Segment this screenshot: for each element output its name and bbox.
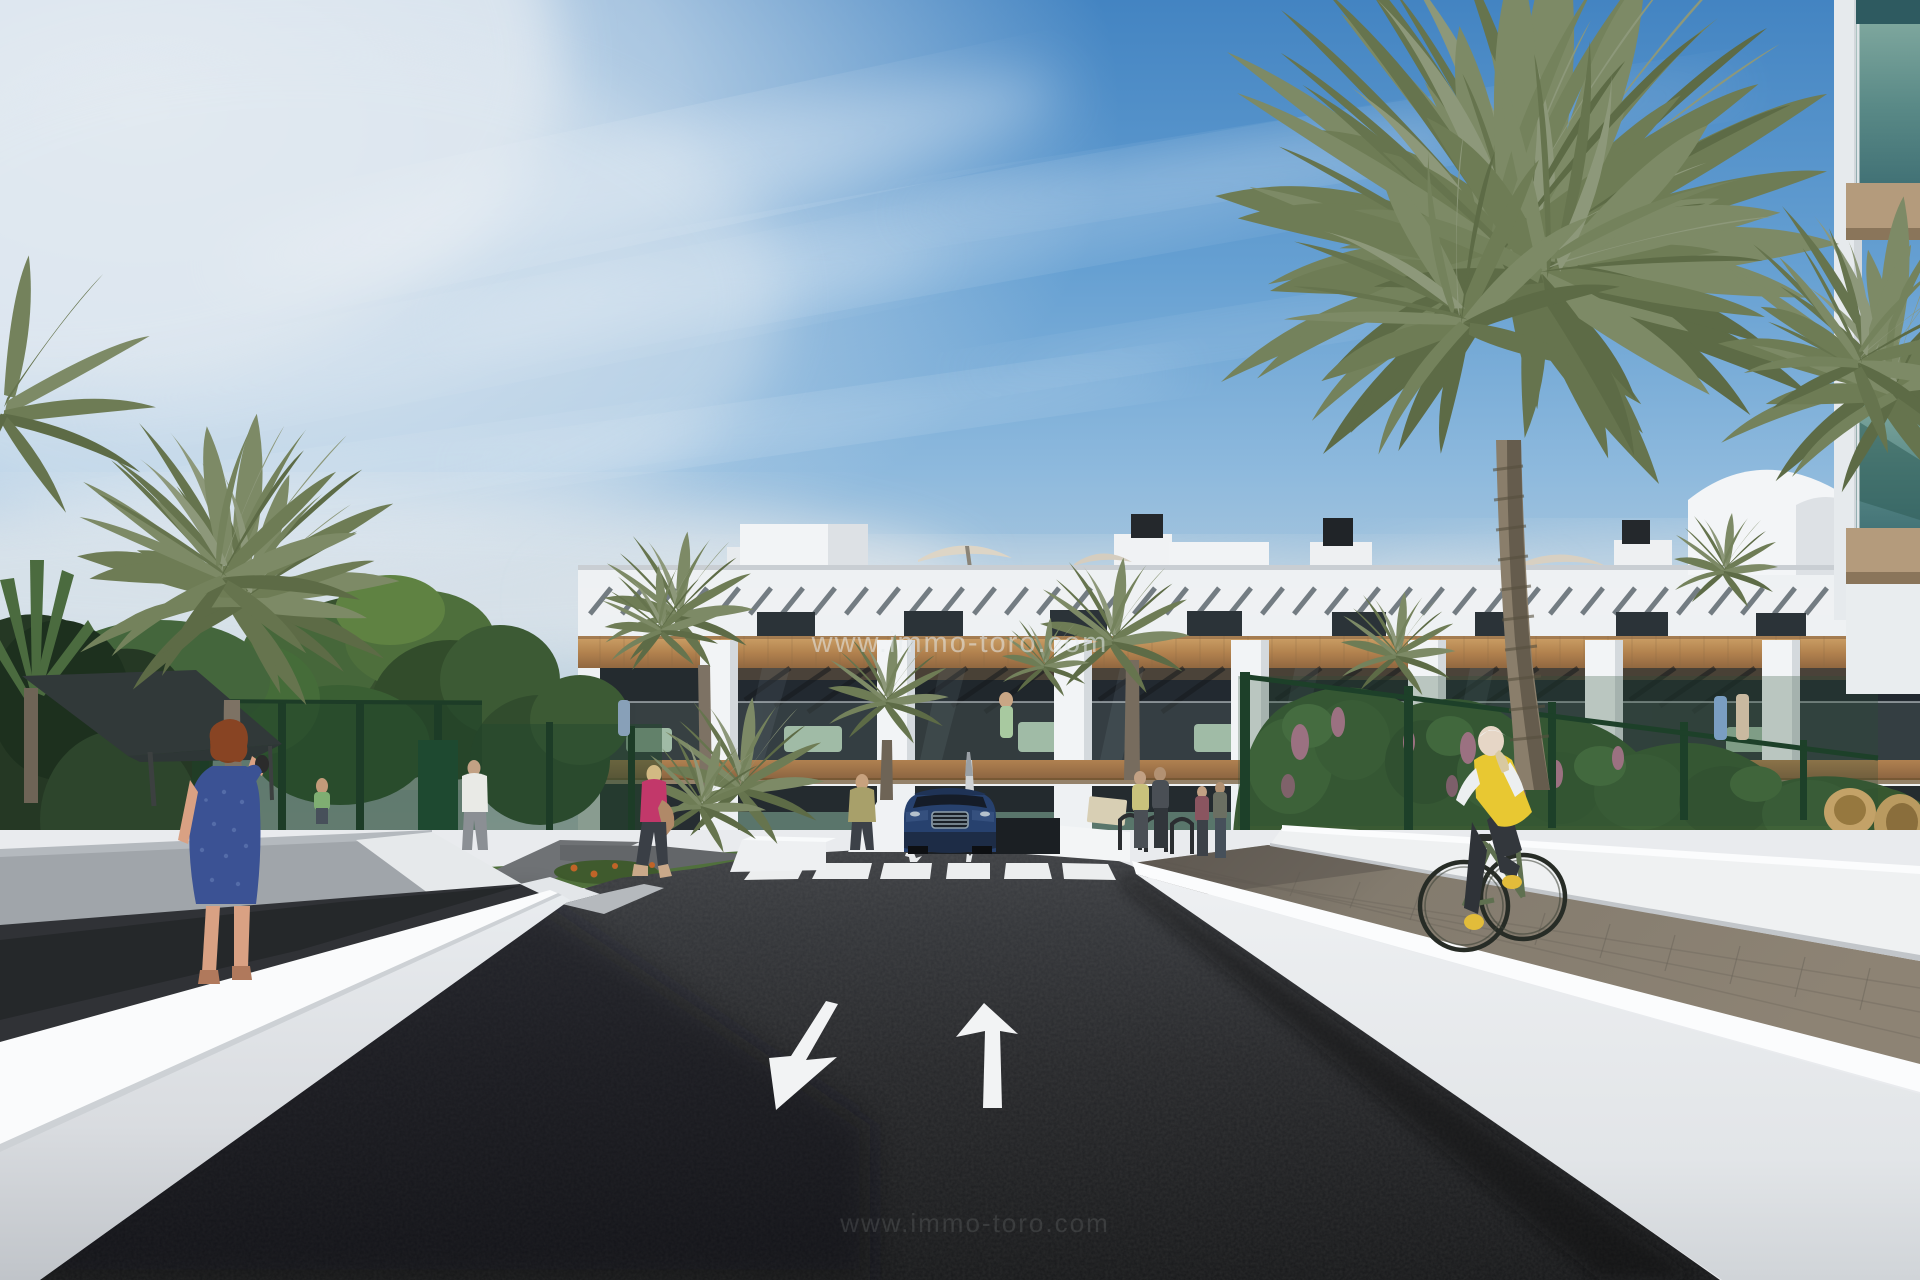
svg-text:www.immo-toro.com: www.immo-toro.com	[839, 1208, 1109, 1238]
svg-text:www.immo-toro.com: www.immo-toro.com	[811, 627, 1109, 659]
